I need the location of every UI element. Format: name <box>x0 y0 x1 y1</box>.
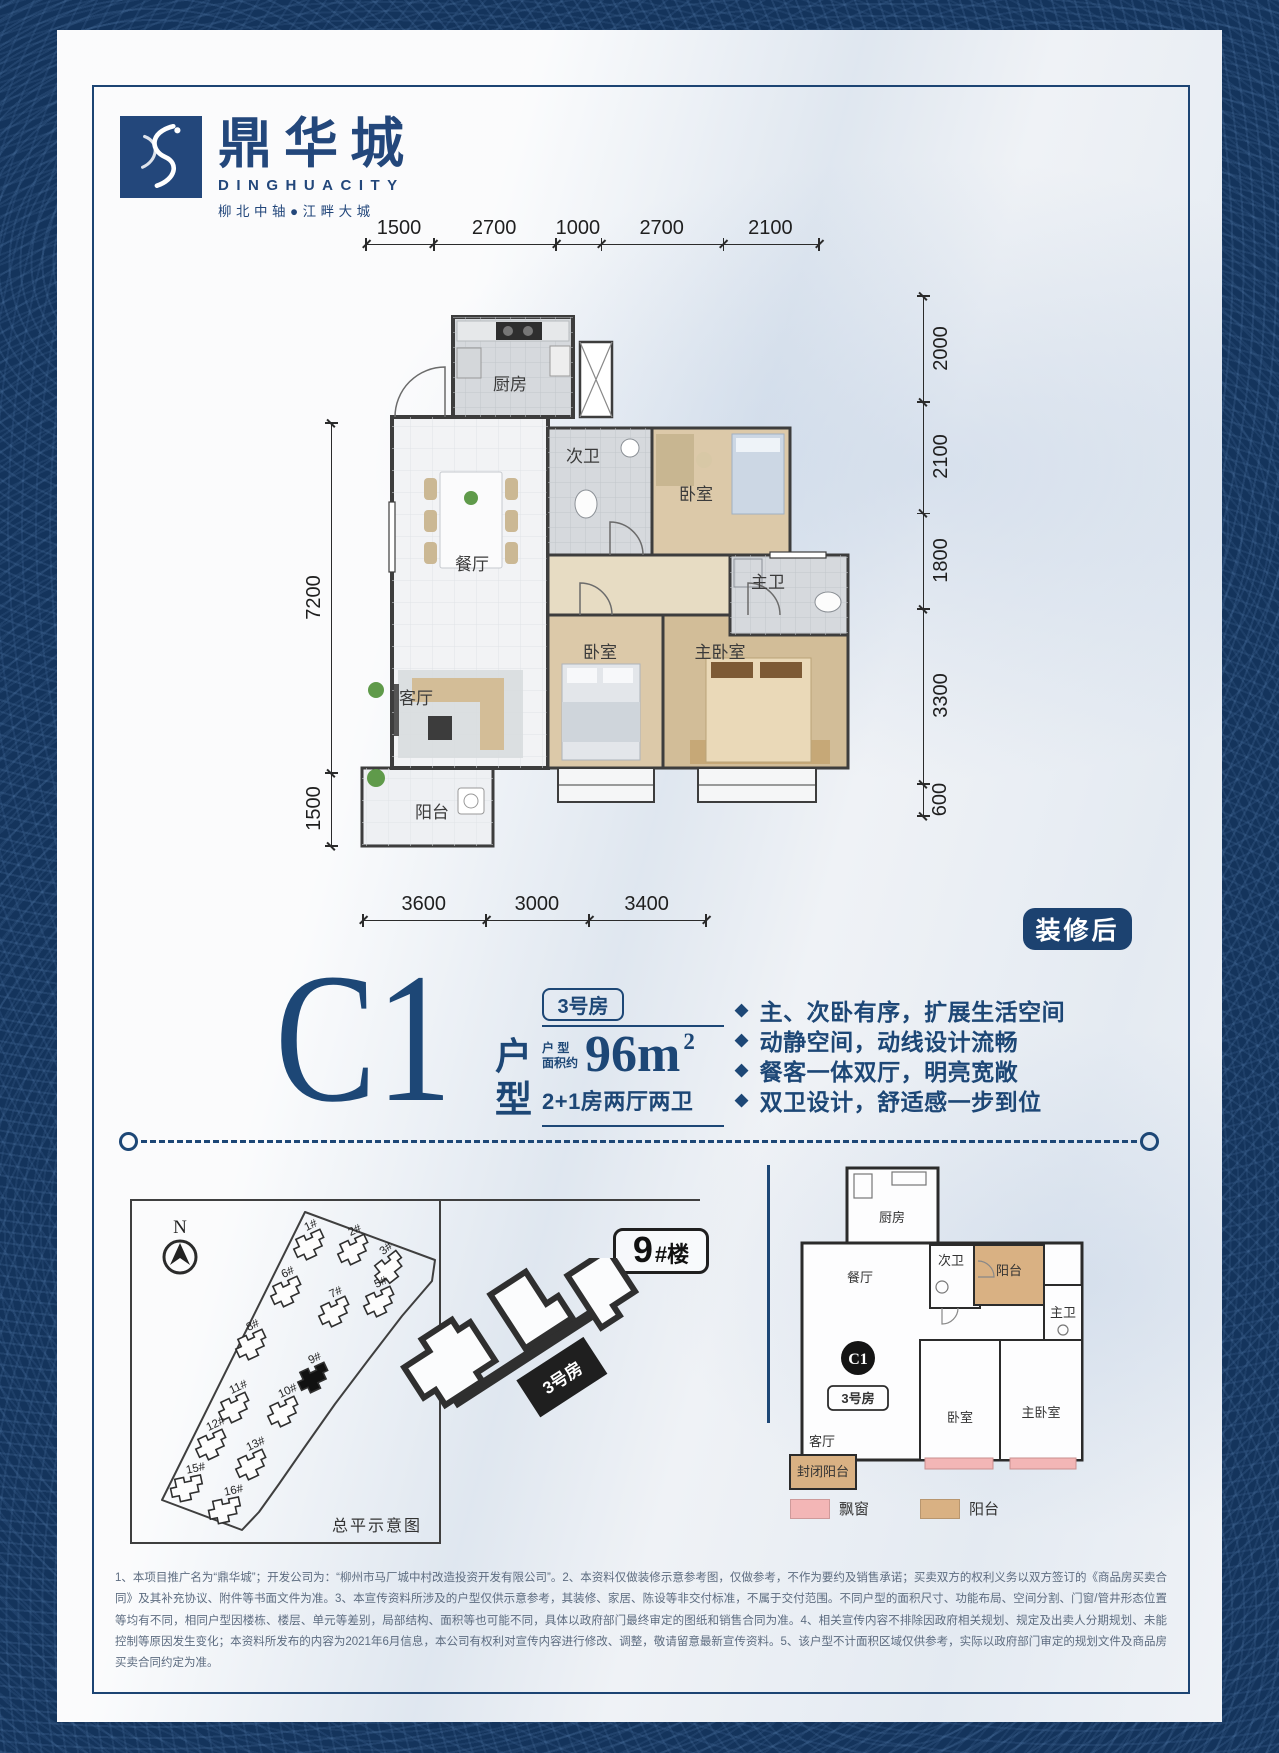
feature-list: ◆主、次卧有序，扩展生活空间◆动静空间，动线设计流畅◆餐客一体双厅，明亮宽敞◆双… <box>735 995 1065 1115</box>
divider-dash <box>141 1140 1137 1143</box>
dim-tick <box>723 238 725 251</box>
dim-value: 2700 <box>472 217 517 240</box>
feature-item: ◆动静空间，动线设计流畅 <box>735 1025 1065 1055</box>
north-compass-icon: N <box>164 1217 196 1273</box>
label-living: 客厅 <box>399 689 433 708</box>
mini-bay-window-2 <box>1010 1458 1076 1469</box>
main-floorplan: 厨房 次卫 卧室 主卫 餐厅 客厅 卧室 主卧室 阳台 <box>300 272 860 862</box>
site-plan: N 1#2#3#6#7#5#8#9#11#10#12#13#15#16# 总平示… <box>130 1199 441 1544</box>
feature-text: 餐客一体双厅，明亮宽敞 <box>760 1053 1019 1087</box>
label-kitchen: 厨房 <box>493 375 527 394</box>
area-prefix-line2: 面积约 <box>542 1056 578 1072</box>
dim-tick <box>555 238 557 251</box>
dim-value: 1500 <box>377 217 422 240</box>
area-prefix: 户 型 面积约 <box>542 1041 578 1079</box>
label-bath1: 主卫 <box>751 573 785 592</box>
dim-tick <box>917 295 930 297</box>
site-building-16: 16# <box>204 1483 249 1525</box>
dim-value: 2100 <box>748 217 793 240</box>
diamond-bullet-icon: ◆ <box>735 1090 749 1110</box>
feature-text: 双卫设计，舒适感一步到位 <box>760 1083 1042 1117</box>
legend-label: 飘窗 <box>839 1498 869 1519</box>
svg-text:16#: 16# <box>223 1483 245 1499</box>
brand-text: 鼎华城 DINGHUACITY 柳北中轴●江畔大城 <box>218 116 416 220</box>
label-bed1: 卧室 <box>583 643 617 662</box>
dimension-line-bottom: 360030003400 <box>362 892 705 928</box>
dim-tick <box>917 608 930 610</box>
site-building-6: 6# <box>262 1264 306 1309</box>
dim-value: 3600 <box>401 893 446 916</box>
dim-tick <box>365 238 367 251</box>
poster-page: 鼎华城 DINGHUACITY 柳北中轴●江畔大城 15002700100027… <box>0 0 1279 1753</box>
mini-label-bath1: 主卫 <box>1050 1305 1076 1320</box>
unit-area: 户 型 面积约 96m 2 <box>542 1032 699 1079</box>
disclaimer-text: 1、本项目推广名为“鼎华城”；开发公司为：“柳州市马厂城中村改造投资开发有限公司… <box>115 1568 1167 1674</box>
svg-text:13#: 13# <box>245 1435 268 1454</box>
diamond-bullet-icon: ◆ <box>735 1060 749 1080</box>
label-bed2: 卧室 <box>679 485 713 504</box>
dim-tick <box>362 914 364 927</box>
mini-label-balcony: 阳台 <box>996 1263 1022 1278</box>
site-building-12: 12# <box>187 1415 237 1463</box>
site-building-13: 13# <box>227 1435 277 1483</box>
divider-dot-left <box>119 1132 138 1151</box>
legend-swatch <box>790 1499 830 1519</box>
dim-value: 2700 <box>639 217 684 240</box>
divider-dot-right <box>1140 1132 1159 1151</box>
feature-text: 动静空间，动线设计流畅 <box>760 1023 1019 1057</box>
mini-label-master: 主卧室 <box>1021 1405 1060 1420</box>
dim-value: 3300 <box>930 673 953 718</box>
svg-text:15#: 15# <box>185 1461 207 1477</box>
mini-label-kitchen: 厨房 <box>879 1210 905 1225</box>
legend: 飘窗阳台 <box>790 1498 1041 1519</box>
site-plan-caption: 总平示意图 <box>332 1516 422 1535</box>
dim-tick <box>917 815 930 817</box>
mini-label-closed-balcony: 封闭阳台 <box>797 1464 849 1479</box>
corridor <box>548 555 730 615</box>
mini-bed <box>920 1340 1000 1460</box>
mini-label-dining: 餐厅 <box>847 1270 873 1285</box>
unit-type-char2: 型 <box>495 1081 532 1118</box>
unit-type-char1: 户 <box>495 1038 532 1075</box>
mini-c1-text: C1 <box>848 1351 868 1368</box>
diamond-bullet-icon: ◆ <box>735 1000 749 1020</box>
label-master: 主卧室 <box>695 643 746 662</box>
area-superscript: 2 <box>683 1029 695 1055</box>
unit-type-label: 户 型 <box>495 1038 532 1118</box>
mini-bay-window-1 <box>925 1458 993 1469</box>
mini-label-bed: 卧室 <box>947 1410 973 1425</box>
area-value: 96m <box>585 1032 680 1079</box>
dim-value: 2000 <box>930 326 953 371</box>
site-buildings: 1#2#3#6#7#5#8#9#11#10#12#13#15#16# <box>166 1217 409 1525</box>
brand-name-cn: 鼎华城 <box>218 116 416 173</box>
legend-swatch <box>920 1499 960 1519</box>
dim-tick <box>601 238 603 251</box>
feature-item: ◆双卫设计，舒适感一步到位 <box>735 1085 1065 1115</box>
rule-bottom <box>542 1125 724 1127</box>
site-building-7: 7# <box>310 1284 354 1329</box>
dim-tick <box>433 238 435 251</box>
section-divider <box>119 1133 1159 1149</box>
vertical-divider <box>767 1165 770 1423</box>
dimension-line-right: 2000210018003300600 <box>916 295 952 815</box>
area-prefix-line1: 户 型 <box>542 1041 578 1057</box>
main-floorplan-svg: 厨房 次卫 卧室 主卫 餐厅 客厅 卧室 主卧室 阳台 <box>300 272 860 862</box>
dim-tick <box>818 238 820 251</box>
dim-tick <box>917 401 930 403</box>
svg-text:10#: 10# <box>277 1382 300 1401</box>
dimension-line-top: 15002700100027002100 <box>365 216 818 252</box>
poster-card: 鼎华城 DINGHUACITY 柳北中轴●江畔大城 15002700100027… <box>57 30 1222 1722</box>
mini-label-bath2: 次卫 <box>938 1253 964 1268</box>
site-building-15: 15# <box>166 1461 211 1503</box>
brand-logo-icon <box>120 116 202 198</box>
room-number-badge: 3号房 <box>542 988 624 1021</box>
site-building-2: 2# <box>329 1222 373 1267</box>
brand-header: 鼎华城 DINGHUACITY 柳北中轴●江畔大城 <box>120 116 416 220</box>
label-bath2: 次卫 <box>566 447 600 466</box>
bay-windows <box>558 768 816 802</box>
dim-value: 3000 <box>515 893 560 916</box>
diamond-bullet-icon: ◆ <box>735 1030 749 1050</box>
dim-tick <box>917 513 930 515</box>
dim-tick <box>588 914 590 927</box>
dim-tick <box>485 914 487 927</box>
brand-name-en: DINGHUACITY <box>218 177 416 194</box>
dim-value: 1800 <box>930 538 953 583</box>
dim-value: 2100 <box>930 435 953 480</box>
unit-layout: 2+1房两厅两卫 <box>542 1084 693 1116</box>
mini-room-badge-text: 3号房 <box>841 1391 874 1406</box>
feature-text: 主、次卧有序，扩展生活空间 <box>760 993 1066 1027</box>
dim-value: 600 <box>930 782 953 815</box>
dim-tick <box>705 914 707 927</box>
mini-floorplan: C1 3号房 厨房 餐厅 次卫 阳台 主卫 卧室 主卧室 客厅 封闭阳台 <box>782 1162 1085 1492</box>
dim-tick <box>917 783 930 785</box>
after-decoration-badge: 装修后 <box>1023 908 1132 950</box>
legend-label: 阳台 <box>969 1498 999 1519</box>
feature-item: ◆餐客一体双厅，明亮宽敞 <box>735 1055 1065 1085</box>
building-9-footprint: 3号房 <box>397 1258 697 1433</box>
label-dining: 餐厅 <box>455 555 489 574</box>
dim-value: 1000 <box>556 217 601 240</box>
unit-code: C1 <box>275 946 452 1131</box>
dim-value: 3400 <box>624 893 669 916</box>
site-plan-top-rule <box>437 1199 700 1201</box>
label-balcony: 阳台 <box>415 803 449 822</box>
mini-label-living: 客厅 <box>809 1434 835 1449</box>
mini-master <box>1000 1340 1082 1460</box>
site-plan-svg: N 1#2#3#6#7#5#8#9#11#10#12#13#15#16# 总平示… <box>132 1201 439 1542</box>
feature-item: ◆主、次卧有序，扩展生活空间 <box>735 995 1065 1025</box>
north-label: N <box>173 1217 187 1238</box>
